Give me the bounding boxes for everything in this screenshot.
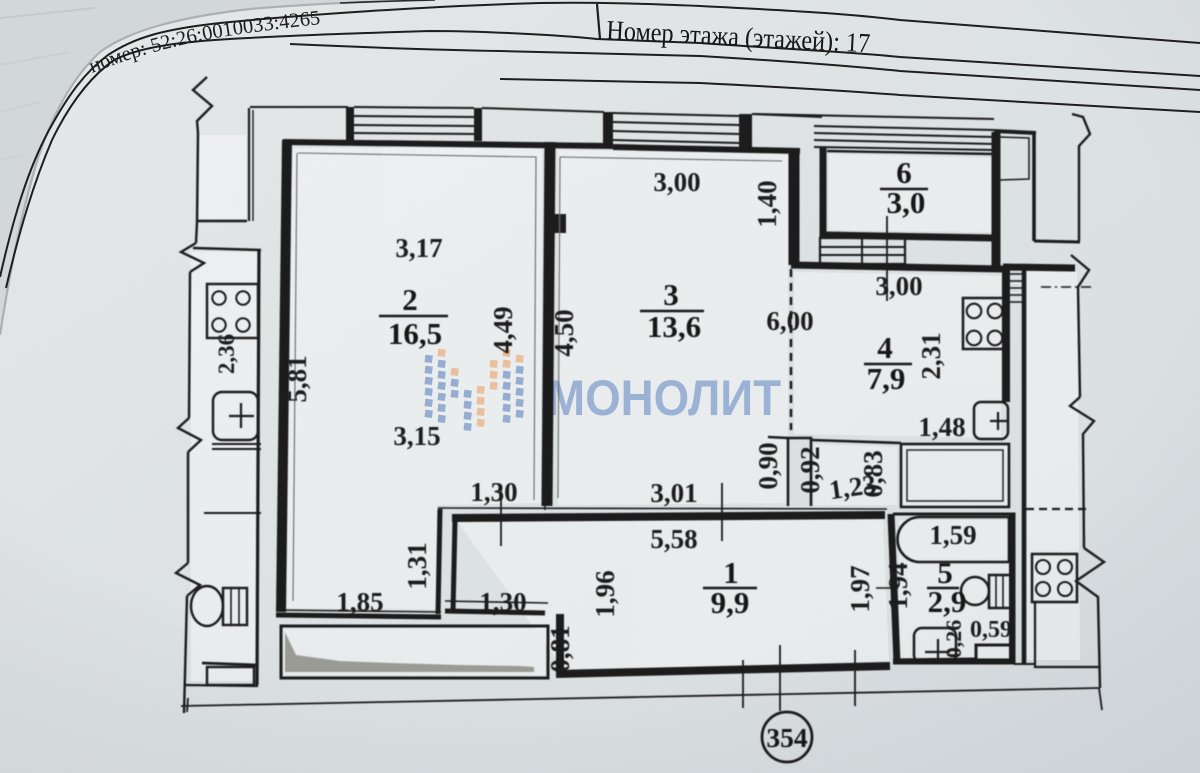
- svg-text:0,59: 0,59: [970, 617, 1012, 643]
- svg-text:1,96: 1,96: [590, 570, 620, 617]
- svg-text:1,59: 1,59: [929, 520, 976, 550]
- svg-text:13,6: 13,6: [647, 309, 701, 344]
- svg-text:0,92: 0,92: [795, 446, 825, 493]
- svg-text:5,58: 5,58: [650, 524, 697, 554]
- svg-text:1,30: 1,30: [470, 477, 517, 507]
- svg-text:3,00: 3,00: [653, 167, 700, 197]
- svg-text:7,9: 7,9: [867, 361, 906, 396]
- svg-text:2: 2: [402, 282, 418, 317]
- svg-text:354: 354: [766, 722, 808, 753]
- svg-text:3: 3: [663, 277, 679, 312]
- svg-text:3,17: 3,17: [395, 233, 442, 263]
- svg-text:9,9: 9,9: [711, 585, 750, 620]
- svg-text:1,94: 1,94: [883, 562, 913, 609]
- svg-text:2,31: 2,31: [916, 332, 946, 379]
- svg-text:0,26: 0,26: [941, 620, 966, 659]
- svg-text:3,15: 3,15: [393, 421, 440, 451]
- svg-text:2,36: 2,36: [214, 334, 239, 374]
- svg-text:1,85: 1,85: [336, 587, 383, 617]
- svg-text:4,50: 4,50: [549, 309, 579, 356]
- svg-text:4,49: 4,49: [488, 306, 518, 353]
- svg-text:6,00: 6,00: [766, 306, 813, 336]
- svg-text:3,01: 3,01: [650, 478, 697, 508]
- svg-text:1,97: 1,97: [845, 565, 875, 612]
- svg-text:4: 4: [877, 330, 893, 365]
- svg-text:1,48: 1,48: [918, 412, 965, 442]
- svg-text:2,9: 2,9: [928, 584, 967, 619]
- svg-text:3,0: 3,0: [887, 185, 926, 220]
- svg-text:5,81: 5,81: [282, 355, 312, 402]
- svg-text:МОНОЛИТ: МОНОЛИТ: [547, 370, 781, 426]
- svg-text:1,31: 1,31: [402, 542, 432, 589]
- svg-text:1,30: 1,30: [479, 587, 526, 617]
- svg-text:0,83: 0,83: [858, 450, 888, 497]
- svg-text:0,81: 0,81: [545, 625, 575, 672]
- svg-text:0,90: 0,90: [753, 442, 783, 489]
- svg-text:1,40: 1,40: [752, 180, 782, 227]
- svg-text:16,5: 16,5: [388, 316, 442, 351]
- svg-text:3,00: 3,00: [875, 271, 922, 301]
